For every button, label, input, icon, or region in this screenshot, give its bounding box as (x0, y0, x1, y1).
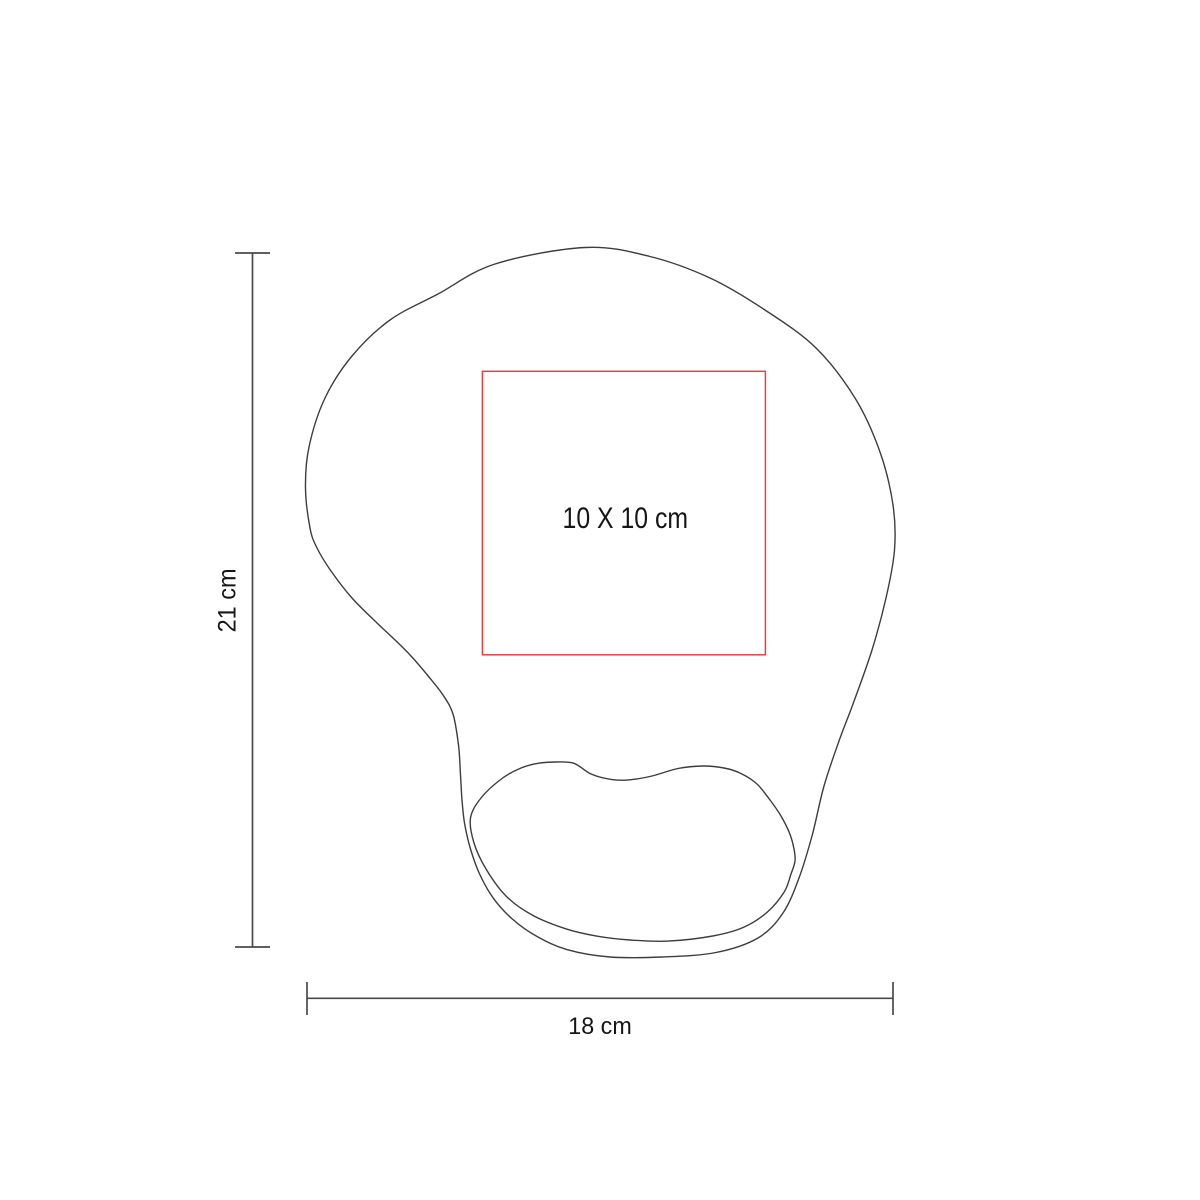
svg-text:21 cm: 21 cm (214, 568, 241, 632)
svg-text:18 cm: 18 cm (568, 1013, 632, 1040)
svg-text:10 X 10 cm: 10 X 10 cm (563, 502, 689, 535)
